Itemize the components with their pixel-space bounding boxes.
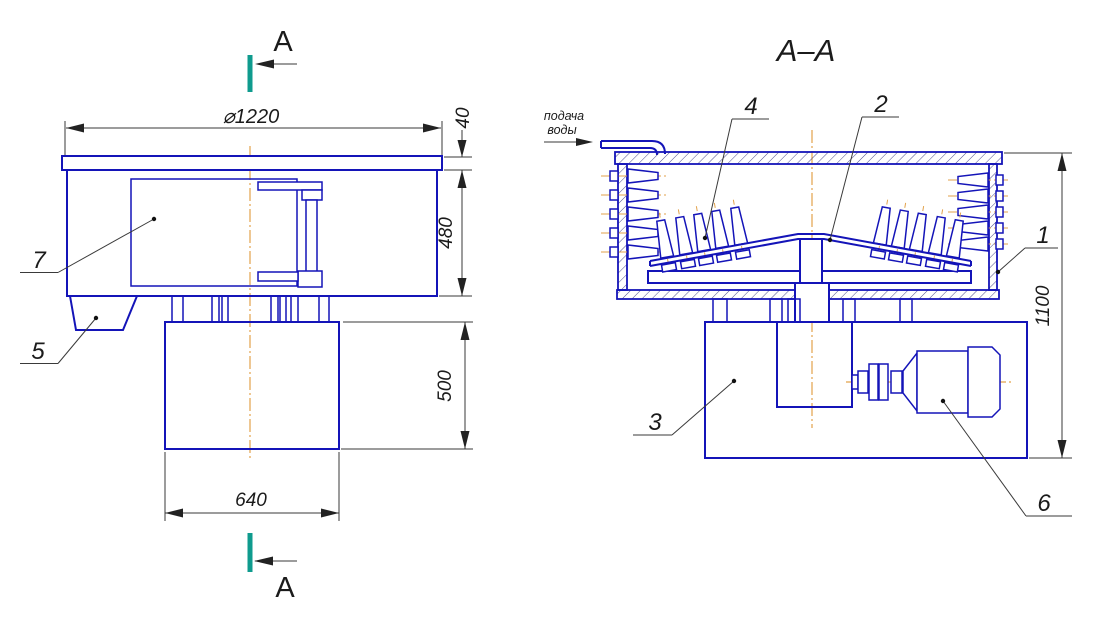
- section-letter-bottom: A: [275, 572, 295, 604]
- part-label-1: 1: [996, 222, 1058, 274]
- gearbox: [777, 322, 852, 407]
- coupling-flange: [879, 364, 888, 400]
- dim-pedestal-width: 640: [165, 452, 339, 521]
- top-flange-front: [62, 156, 442, 170]
- machine-front: [62, 156, 442, 449]
- vibrating-disc-assembly: [648, 198, 971, 322]
- disc-pegs-right: [871, 198, 968, 271]
- discharge-chute: [70, 296, 137, 330]
- dim-diameter: ⌀1220: [65, 106, 442, 158]
- motor-body: [917, 351, 968, 413]
- section-view: A–A подача воды: [544, 33, 1072, 517]
- dim-total-height: 1100: [1004, 153, 1072, 458]
- water-supply-note: подача воды: [544, 109, 593, 146]
- dim-40-text: 40: [453, 107, 474, 129]
- motor-cone-adapter: [903, 353, 917, 411]
- dim-diameter-text: ⌀1220: [223, 106, 280, 128]
- motor-shaft-stub: [852, 375, 858, 389]
- top-flange-section: [615, 152, 1002, 164]
- part-label-2-text: 2: [873, 91, 887, 118]
- technical-drawing: A ⌀1220: [0, 0, 1102, 624]
- water-flow-arrow: [576, 138, 593, 146]
- pedestal: [165, 322, 339, 449]
- motor: [852, 347, 1000, 417]
- dim-flange-height: 40: [444, 107, 474, 170]
- part-label-3-text: 3: [648, 409, 662, 436]
- inner-frame: [131, 179, 297, 286]
- dim-500-text: 500: [435, 370, 456, 402]
- left-wall: [618, 164, 627, 290]
- part-label-7-text: 7: [32, 247, 47, 274]
- section-arrow: [254, 557, 273, 566]
- dim-1100-text: 1100: [1033, 285, 1054, 326]
- body-front: [67, 170, 437, 296]
- dim-body-height: 480: [436, 170, 472, 296]
- part-label-7: 7: [20, 217, 156, 274]
- part-label-6-text: 6: [1037, 490, 1051, 517]
- part-label-4-text: 4: [744, 93, 757, 120]
- section-marker-top: A: [250, 26, 297, 92]
- part-label-3: 3: [633, 379, 736, 436]
- dim-pedestal-height: 500: [341, 322, 473, 449]
- section-title: A–A: [775, 33, 836, 68]
- section-marker-bottom: A: [250, 533, 297, 604]
- section-arrow: [255, 60, 274, 69]
- coupling-flange: [869, 364, 878, 400]
- section-letter-top: A: [273, 26, 293, 58]
- motor-end-cap: [968, 347, 1000, 417]
- bracket-mechanism: [258, 182, 322, 287]
- part-label-1-text: 1: [1036, 222, 1049, 249]
- water-note-line1: подача: [544, 109, 584, 123]
- dim-640-text: 640: [235, 490, 267, 511]
- part-label-5-text: 5: [31, 338, 45, 365]
- disc-shaft: [800, 239, 822, 283]
- wall-fins-left: [601, 169, 666, 259]
- drive-base: [705, 322, 1027, 458]
- disc-pegs-left: [652, 199, 750, 272]
- dim-480-text: 480: [436, 217, 457, 249]
- water-note-line2: воды: [547, 123, 576, 137]
- drawing-canvas: A ⌀1220: [0, 0, 1102, 624]
- front-view: A ⌀1220: [20, 26, 474, 604]
